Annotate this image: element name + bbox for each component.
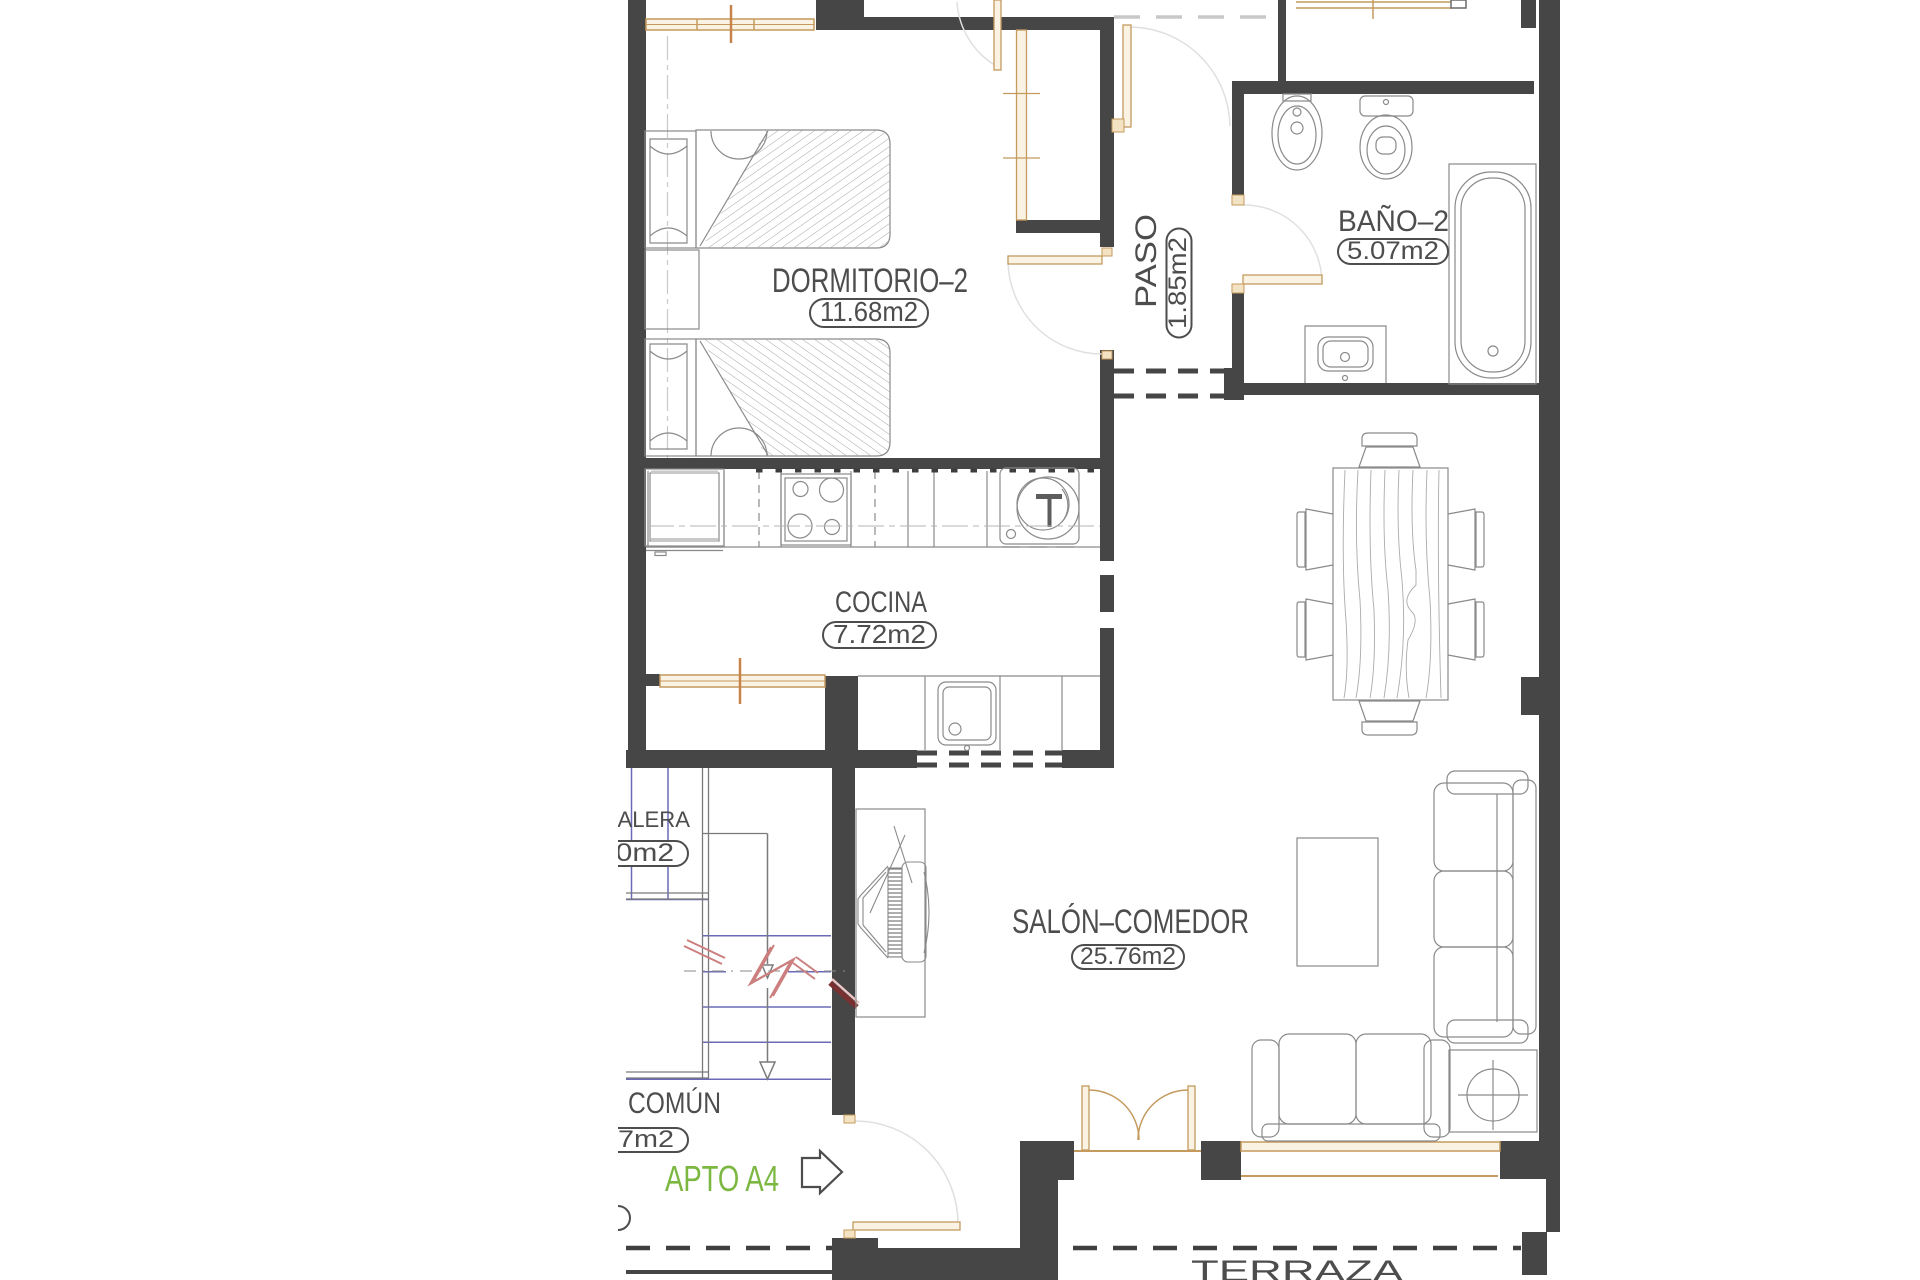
svg-text:5.07m2: 5.07m2	[1347, 237, 1439, 265]
svg-text:11.68m2: 11.68m2	[820, 296, 918, 327]
svg-text:PASO: PASO	[1130, 214, 1163, 308]
svg-text:SALÓN–COMEDOR: SALÓN–COMEDOR	[1012, 903, 1249, 941]
svg-text:1.85m2: 1.85m2	[1164, 237, 1192, 329]
svg-text:7.72m2: 7.72m2	[833, 619, 926, 649]
svg-text:25.76m2: 25.76m2	[1080, 943, 1176, 970]
svg-text:DORMITORIO–2: DORMITORIO–2	[772, 262, 968, 300]
svg-text:APTO A4: APTO A4	[665, 1158, 779, 1199]
svg-text:TERRAZA: TERRAZA	[1191, 1255, 1403, 1280]
svg-text:COCINA: COCINA	[835, 586, 927, 619]
svg-text:BAÑO–2: BAÑO–2	[1338, 204, 1449, 238]
svg-text:COMÚN: COMÚN	[628, 1087, 721, 1120]
